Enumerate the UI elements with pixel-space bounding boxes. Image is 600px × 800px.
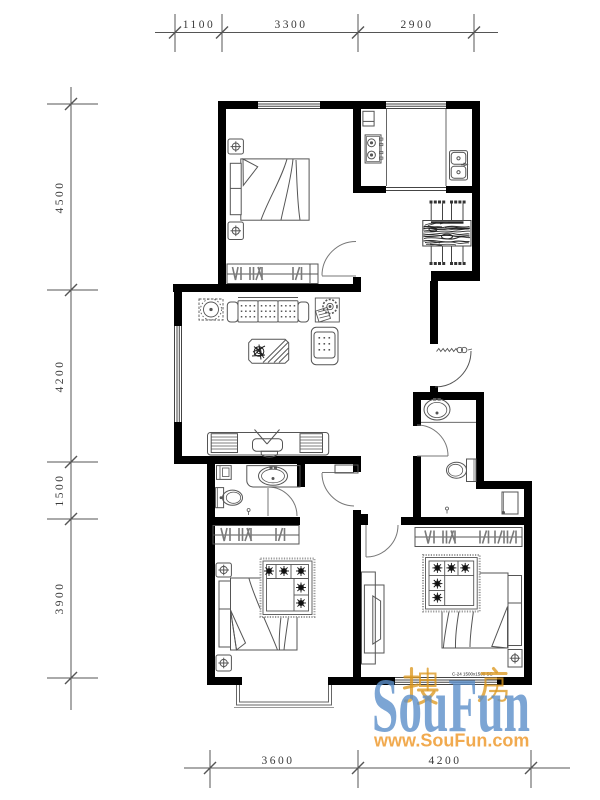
svg-text:4200: 4200: [54, 360, 66, 393]
svg-text:3900: 3900: [54, 582, 66, 615]
svg-text:2900: 2900: [401, 19, 434, 31]
svg-text:1100: 1100: [183, 19, 216, 31]
svg-text:3300: 3300: [275, 19, 308, 31]
svg-text:1500: 1500: [54, 474, 66, 507]
svg-text:4500: 4500: [54, 181, 66, 214]
svg-text:4200: 4200: [429, 755, 462, 767]
svg-text:www.SouFun.com: www.SouFun.com: [373, 731, 529, 751]
svg-text:3600: 3600: [262, 755, 295, 767]
